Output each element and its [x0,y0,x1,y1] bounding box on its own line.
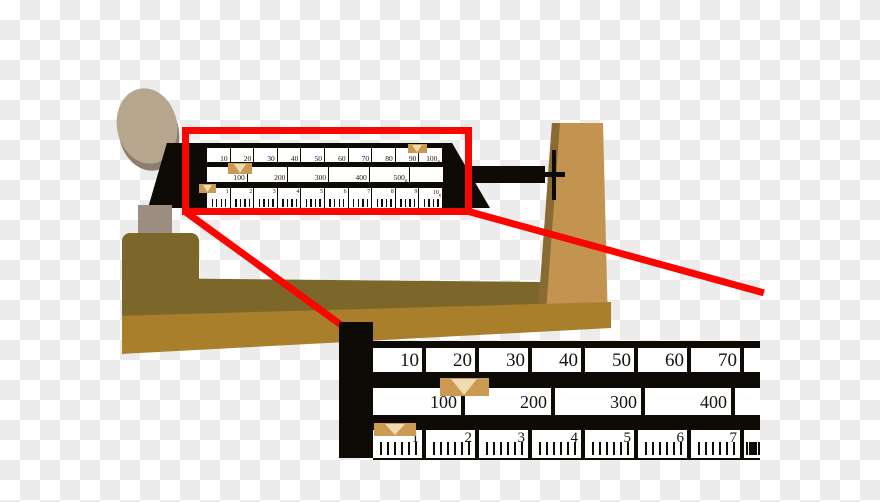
tick-mark [627,442,629,455]
beam-segment [744,348,760,372]
beam-segment: 50 [585,348,638,372]
tick-mark [507,442,509,455]
rider-notch-icon [385,424,405,435]
beam-label: 70 [718,348,740,372]
beam-segment: 6 [638,430,691,458]
magnified-frame-mid-bar [373,372,760,388]
tick-mark [553,442,555,455]
magnified-rider-middle-beam [440,378,489,396]
tick-mark [539,442,541,455]
tick-mark [613,442,615,455]
base-plinth [122,233,199,282]
tick-mark [500,442,502,455]
tick-mark [712,442,714,455]
tick-mark [433,442,435,455]
triple-beam-balance-illustration: 102030405060708090100g 100200300400500g … [0,0,880,502]
tick-mark [514,442,516,455]
magnified-beam-holder-bar [339,322,373,458]
beam-segment: 60 [638,348,691,372]
beam-segment: 2 [426,430,479,458]
tick-mark [599,442,601,455]
magnified-frame-mid-bar [373,415,760,430]
magnified-top-beam-scale: 10203040506070 [373,348,760,372]
beam-label: 50 [612,348,634,372]
tick-mark [461,442,463,455]
tick-mark [447,442,449,455]
tick-mark [592,442,594,455]
beam-segment [744,430,760,458]
tick-mark [521,442,523,455]
tick-mark [726,442,728,455]
beam-label: 40 [559,348,581,372]
beam-label: 400 [700,388,731,415]
tick-mark [733,442,735,455]
beam-label: 300 [610,388,641,415]
tick-mark [645,442,647,455]
tick-mark [719,442,721,455]
magnified-middle-beam-scale: 100200300400 [373,388,760,415]
tick-mark [680,442,682,455]
tick-mark [440,442,442,455]
beam-segment: 400 [645,388,735,415]
magnified-rider-bottom-beam [374,423,416,436]
tick-mark [620,442,622,455]
tick-mark [401,442,403,455]
beam-segment [735,388,760,415]
beam-segment: 7 [691,430,744,458]
tick-mark [380,442,382,455]
beam-segment: 300 [555,388,645,415]
beam-label: 200 [520,388,551,415]
beam-segment: 40 [532,348,585,372]
tick-mark [567,442,569,455]
tick-mark [606,442,608,455]
tick-mark [408,442,410,455]
beam-segment: 30 [479,348,532,372]
tick-mark [659,442,661,455]
beam-segment: 4 [532,430,585,458]
beam-segment: 10 [373,348,426,372]
tick-mark [394,442,396,455]
beam-label: 30 [506,348,528,372]
tick-mark [387,442,389,455]
tick-mark [560,442,562,455]
rider-notch-icon [451,379,477,395]
beam-segment: 3 [479,430,532,458]
beam-segment: 20 [426,348,479,372]
balance-pointer [552,150,556,200]
highlight-rectangle [182,127,472,215]
tick-mark [468,442,470,455]
tick-mark [652,442,654,455]
tick-mark [705,442,707,455]
tick-mark [673,442,675,455]
magnified-bottom-beam-scale: 1234567 [373,430,760,460]
beam-label: 10 [400,348,422,372]
beam-label: 60 [665,348,687,372]
tick-mark [574,442,576,455]
beam-arm [460,166,545,183]
tick-mark [758,442,760,455]
tick-mark [493,442,495,455]
magnified-frame-top-bar [373,341,760,348]
tick-mark [486,442,488,455]
tick-mark [698,442,700,455]
beam-segment: 70 [691,348,744,372]
tick-mark [454,442,456,455]
tick-mark [546,442,548,455]
beam-label: 20 [453,348,475,372]
beam-segment: 5 [585,430,638,458]
tick-mark [666,442,668,455]
tick-mark [415,442,417,455]
